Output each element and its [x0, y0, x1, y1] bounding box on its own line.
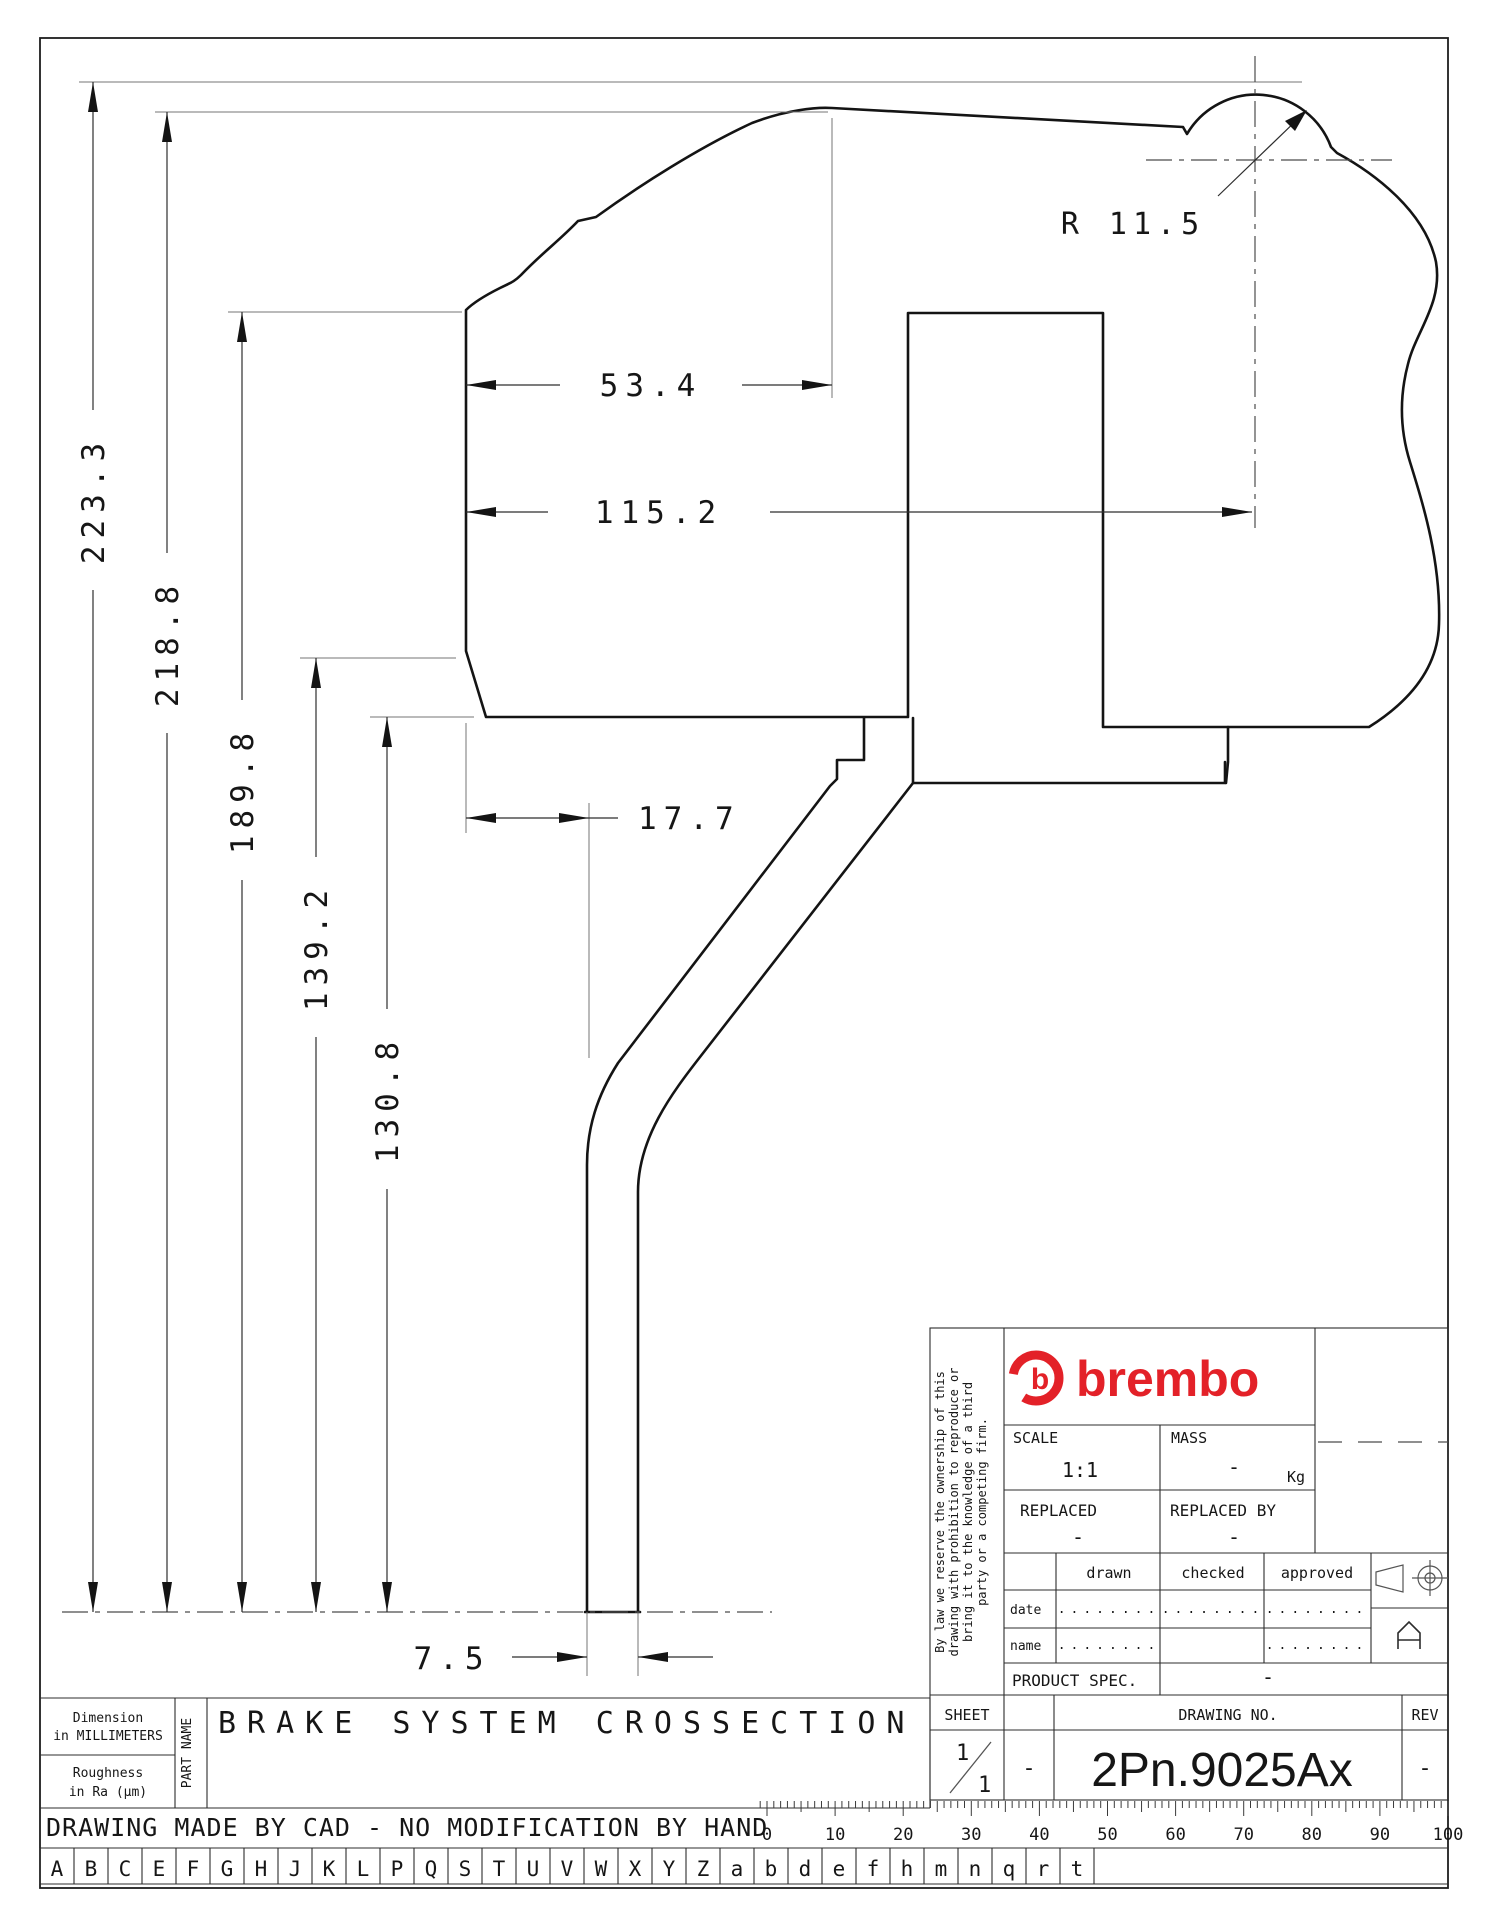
ruler-number: 90 — [1370, 1825, 1390, 1845]
revision-letter: T — [493, 1857, 506, 1881]
replaced-value: - — [1072, 1525, 1084, 1549]
vdim-139-2: 139.2 — [299, 658, 335, 1612]
revision-letter: r — [1037, 1857, 1050, 1881]
revision-letter: V — [561, 1857, 574, 1881]
name-drawn-dots: ........ — [1058, 1638, 1161, 1653]
dim-label: 7.5 — [414, 1641, 491, 1677]
rev-label: REV — [1411, 1706, 1438, 1724]
scale-label: SCALE — [1013, 1429, 1058, 1447]
hdim-115-2: 115.2 — [466, 495, 1252, 531]
replaced-label: REPLACED — [1020, 1501, 1097, 1520]
revision-letter: U — [527, 1857, 540, 1881]
revision-letter: h — [901, 1857, 914, 1881]
dim-label: 17.7 — [638, 801, 741, 837]
revision-letter: a — [731, 1857, 744, 1881]
date-checked-dots: ........ — [1162, 1602, 1265, 1617]
brembo-wordmark: brembo — [1076, 1351, 1259, 1407]
drawing-number: 2Pn.9025Ax — [1091, 1744, 1353, 1797]
disclaimer-line: By law we reserve the ownership of this — [933, 1371, 947, 1653]
disclaimer: By law we reserve the ownership of this … — [933, 1368, 989, 1657]
name-approved-dots: ........ — [1266, 1638, 1369, 1653]
approved-header: approved — [1281, 1564, 1353, 1582]
vdim-218-8: 218.8 — [150, 112, 186, 1612]
radius-label: R 11.5 — [1061, 207, 1205, 242]
vdim-189-8: 189.8 — [225, 312, 261, 1612]
revision-letter: X — [629, 1857, 642, 1881]
name-label: name — [1010, 1639, 1041, 1654]
disclaimer-line: drawing with prohibition to reproduce or — [947, 1368, 961, 1657]
revision-letter: n — [969, 1857, 982, 1881]
title-block: By law we reserve the ownership of this … — [930, 1328, 1448, 1800]
brembo-logo-b: b — [1031, 1363, 1049, 1396]
dim-label: 218.8 — [150, 579, 186, 707]
mass-unit: Kg — [1287, 1468, 1305, 1486]
sheet-denominator: 1 — [978, 1773, 991, 1798]
revision-letter: S — [459, 1857, 472, 1881]
sheet-numerator: 1 — [956, 1741, 969, 1766]
revision-letter: J — [289, 1857, 302, 1881]
ruler-number: 30 — [961, 1825, 981, 1845]
roughness-label-2: in Ra (μm) — [69, 1785, 147, 1800]
hdim-17-7: 17.7 — [466, 801, 741, 837]
drawn-header: drawn — [1086, 1564, 1131, 1582]
drawing-no-label: DRAWING NO. — [1178, 1706, 1277, 1724]
ruler-number: 40 — [1029, 1825, 1049, 1845]
vdim-223-3: 223.3 — [76, 82, 112, 1612]
revision-letter: B — [85, 1857, 98, 1881]
rev-value: - — [1418, 1756, 1431, 1781]
mass-label: MASS — [1171, 1429, 1207, 1447]
ruler-number: 100 — [1433, 1825, 1464, 1845]
revision-letter: q — [1003, 1857, 1016, 1881]
revision-letter: L — [357, 1857, 370, 1881]
revision-letter: G — [221, 1857, 234, 1881]
dim-label: 189.8 — [225, 726, 261, 854]
revision-letter: P — [391, 1857, 404, 1881]
revision-letter: Y — [663, 1857, 676, 1881]
sheet-label: SHEET — [944, 1706, 989, 1724]
date-label: date — [1010, 1603, 1041, 1618]
date-drawn-dots: ........ — [1058, 1602, 1161, 1617]
cad-sheet: 223.3 218.8 189.8 139.2 130.8 53.4 — [0, 0, 1486, 1920]
ruler-number: 70 — [1233, 1825, 1253, 1845]
revision-letter: d — [799, 1857, 812, 1881]
product-spec-label: PRODUCT SPEC. — [1012, 1671, 1137, 1690]
roughness-label-1: Roughness — [73, 1766, 143, 1781]
sheet-fraction: 1 1 — [950, 1741, 991, 1798]
ruler-number: 80 — [1302, 1825, 1322, 1845]
product-spec-value: - — [1262, 1665, 1274, 1689]
projection-symbol — [1376, 1560, 1448, 1596]
part-title: BRAKE SYSTEM CROSSECTION — [218, 1706, 915, 1741]
vdim-130-8: 130.8 — [370, 717, 406, 1612]
ruler-number: 50 — [1097, 1825, 1117, 1845]
revision-letter: K — [323, 1857, 336, 1881]
disc-outline — [585, 718, 1225, 1612]
ruler-number: 10 — [825, 1825, 845, 1845]
drawing-canvas: 223.3 218.8 189.8 139.2 130.8 53.4 — [0, 0, 1486, 1920]
dim-label: 53.4 — [600, 368, 703, 404]
revision-letter: H — [255, 1857, 268, 1881]
dim-label: 223.3 — [76, 436, 112, 564]
revision-letter: A — [51, 1857, 64, 1881]
ruler-number: 60 — [1165, 1825, 1185, 1845]
disclaimer-line: bring it to the knowledge of a third — [961, 1382, 975, 1642]
caliper-outline — [466, 95, 1439, 783]
mass-value: - — [1228, 1455, 1240, 1479]
scale-value: 1:1 — [1062, 1458, 1098, 1482]
date-approved-dots: ........ — [1266, 1602, 1369, 1617]
replaced-by-value: - — [1228, 1525, 1240, 1549]
brembo-logo: b brembo — [1013, 1351, 1259, 1407]
sheet-dash: - — [1022, 1756, 1035, 1781]
dimension-units-label-1: Dimension — [73, 1711, 143, 1726]
hdim-53-4: 53.4 — [466, 368, 832, 404]
ruler-number: 20 — [893, 1825, 913, 1845]
dim-label: 139.2 — [299, 883, 335, 1011]
dim-label: 115.2 — [595, 495, 723, 531]
revision-letter: F — [187, 1857, 200, 1881]
disclaimer-line: party or a competing firm. — [975, 1418, 989, 1606]
revision-letter: t — [1071, 1857, 1084, 1881]
part-name-label: PART NAME — [180, 1718, 195, 1788]
revision-letter: m — [935, 1857, 948, 1881]
revision-letter: f — [867, 1857, 880, 1881]
extension-lines — [79, 82, 1302, 1676]
revision-letter: E — [153, 1857, 166, 1881]
ruler-number: 0 — [762, 1825, 772, 1845]
revision-letter: Q — [425, 1857, 438, 1881]
replaced-by-label: REPLACED BY — [1170, 1501, 1276, 1520]
dim-label: 130.8 — [370, 1035, 406, 1163]
info-boxes: Dimension in MILLIMETERS Roughness in Ra… — [40, 1698, 930, 1842]
paper-size-symbol — [1398, 1622, 1420, 1649]
revision-letter: C — [119, 1857, 132, 1881]
revision-letter: W — [595, 1857, 608, 1881]
revision-letter: e — [833, 1857, 846, 1881]
revision-letter: b — [765, 1857, 778, 1881]
cad-note: DRAWING MADE BY CAD - NO MODIFICATION BY… — [46, 1813, 768, 1842]
checked-header: checked — [1181, 1564, 1244, 1582]
revision-letter-row: ABCEFGHJKLPQSTUVWXYZabdefhmnqrt — [40, 1848, 1448, 1884]
dimension-units-label-2: in MILLIMETERS — [53, 1729, 163, 1744]
revision-letter: Z — [697, 1857, 710, 1881]
hdim-7-5: 7.5 — [414, 1641, 714, 1677]
